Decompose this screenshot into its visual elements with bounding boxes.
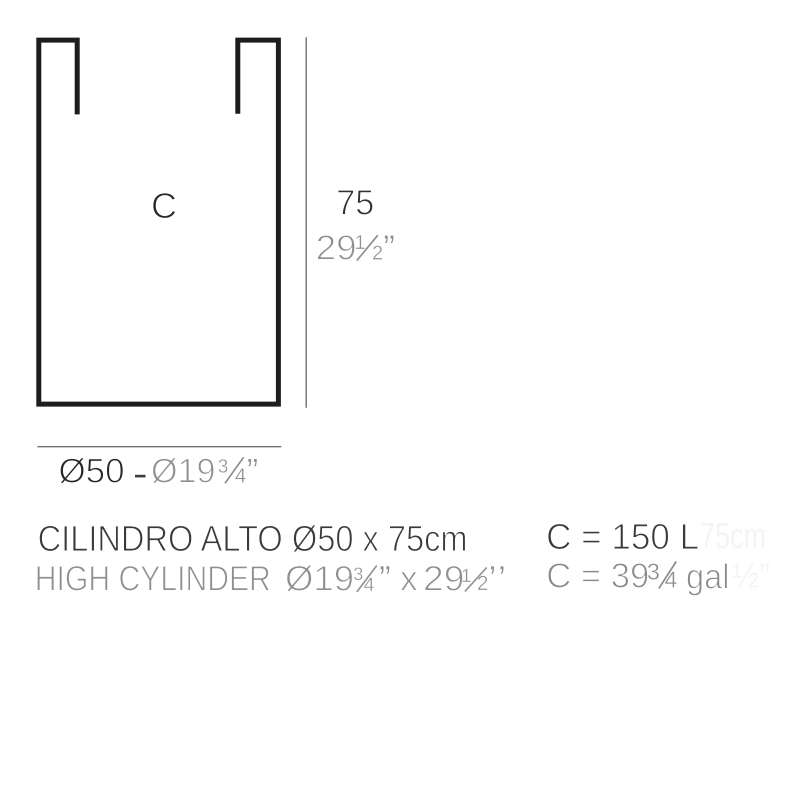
svg-text:C = 150 L: C = 150 L	[546, 516, 699, 557]
svg-text:3: 3	[353, 564, 363, 584]
svg-text:C: C	[151, 185, 177, 226]
svg-text:4: 4	[665, 567, 678, 593]
svg-text:29: 29	[423, 558, 465, 598]
svg-text:”: ”	[379, 558, 391, 598]
svg-text:½”: ½”	[732, 556, 770, 595]
svg-text:4: 4	[364, 574, 375, 596]
svg-text:x: x	[400, 558, 418, 598]
svg-text:Ø19: Ø19	[151, 452, 216, 490]
svg-text:’: ’	[498, 558, 506, 598]
svg-text:’: ’	[489, 558, 497, 598]
svg-text:3: 3	[647, 558, 660, 584]
svg-text:4: 4	[235, 465, 246, 488]
svg-text:CILINDRO ALTO Ø50 x 75cm: CILINDRO ALTO Ø50 x 75cm	[38, 518, 468, 559]
svg-text:”: ”	[383, 229, 395, 268]
svg-text:3: 3	[218, 457, 229, 478]
svg-text:2: 2	[477, 572, 488, 595]
svg-text:Ø50: Ø50	[59, 452, 125, 490]
svg-text:Ø19: Ø19	[285, 558, 354, 598]
svg-text:”: ”	[247, 452, 258, 490]
svg-text:C = 39: C = 39	[546, 556, 649, 595]
svg-text:29: 29	[316, 229, 357, 268]
svg-text:2: 2	[372, 243, 383, 265]
svg-text:1: 1	[461, 566, 472, 587]
svg-text:75: 75	[336, 183, 374, 223]
svg-text:HIGH CYLINDER: HIGH CYLINDER	[35, 558, 271, 598]
svg-text:75cm: 75cm	[700, 515, 766, 556]
svg-text:gal: gal	[686, 558, 730, 597]
